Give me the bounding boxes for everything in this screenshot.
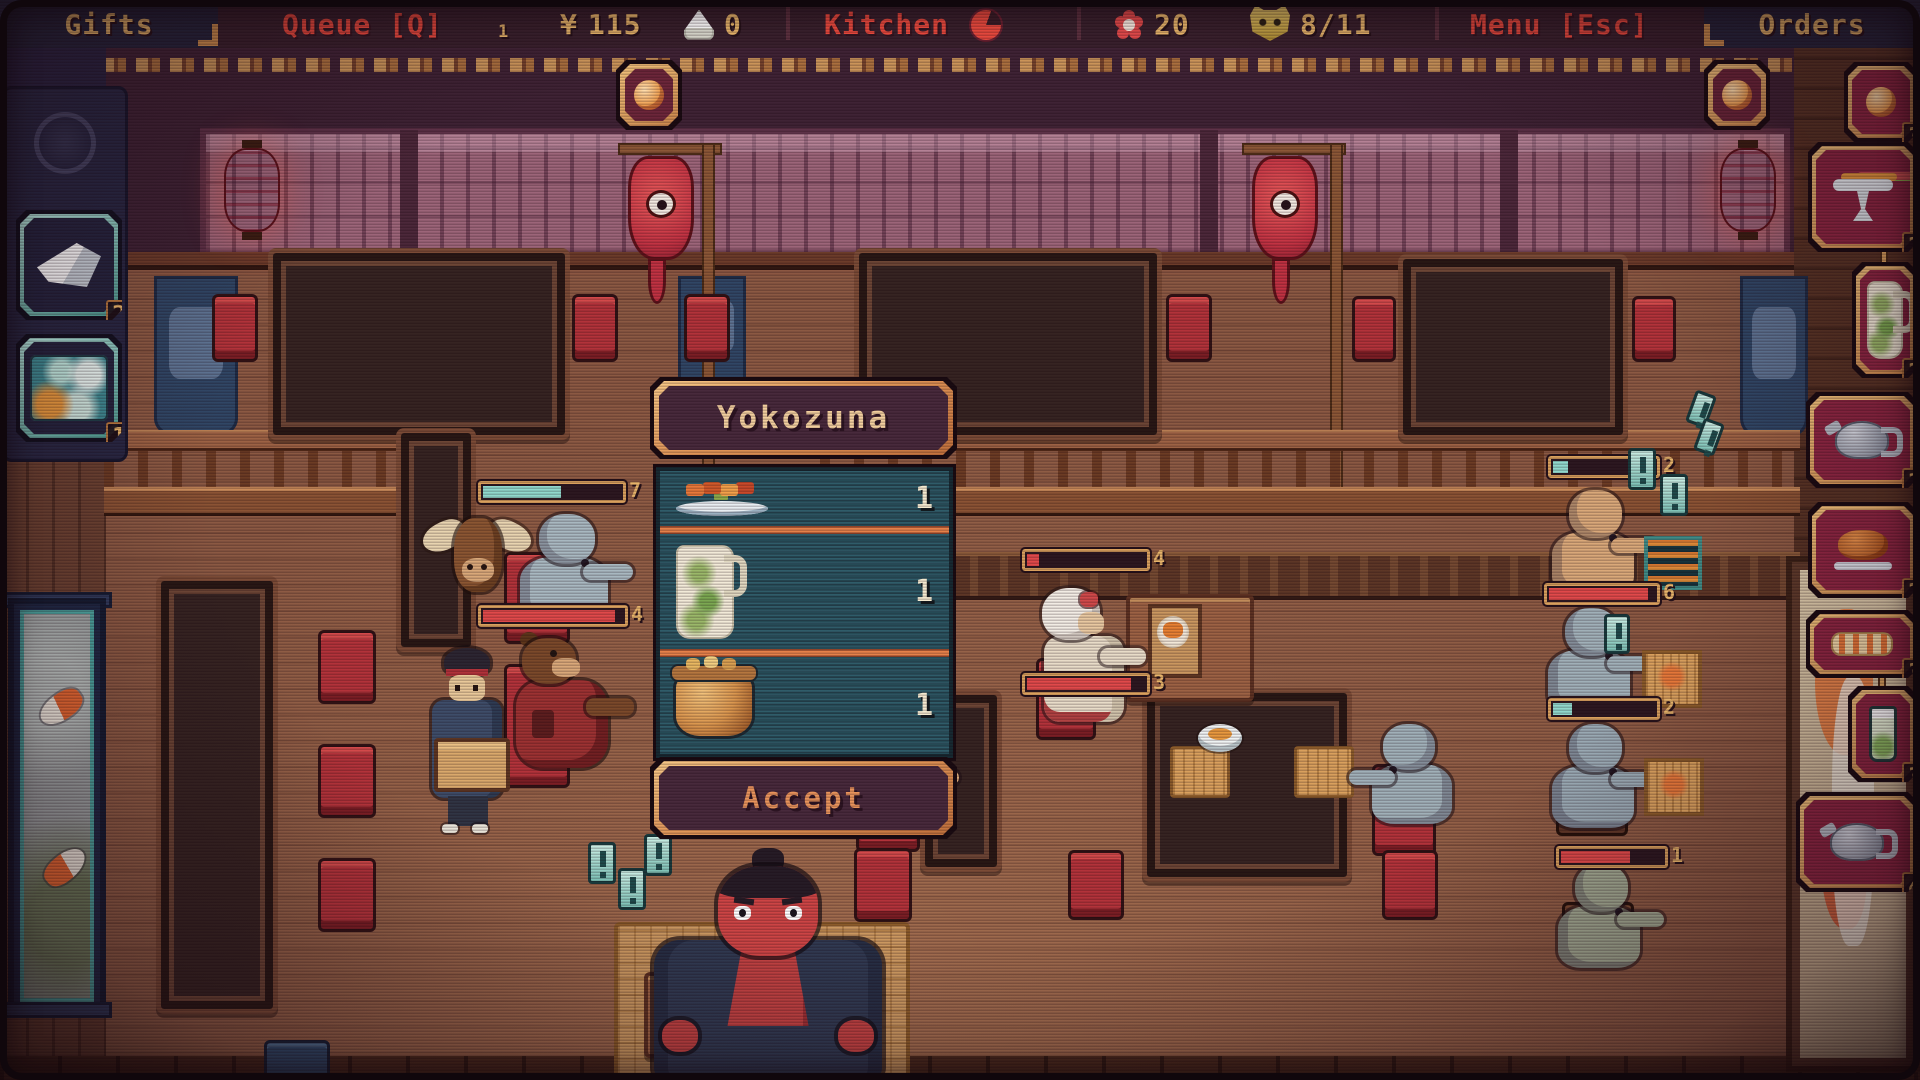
game-screen: 7 4 4 3 2 6 2 1 2 1 3 2 2 2 2	[0, 0, 1920, 1080]
waiter-character[interactable]	[424, 648, 510, 834]
chair	[572, 294, 618, 362]
red-lantern	[224, 148, 280, 232]
patience-bar: 2	[1548, 698, 1660, 720]
gift-slot-wave[interactable]: 1	[16, 334, 122, 442]
face	[1078, 612, 1104, 634]
divider	[1435, 6, 1439, 40]
gold-chain-decor	[0, 58, 1920, 72]
hair-bow	[1080, 592, 1098, 607]
robe-patch	[532, 710, 554, 738]
queued-customer-tan[interactable]	[1544, 490, 1642, 594]
shoe	[472, 824, 488, 833]
head	[718, 866, 818, 956]
eye	[785, 906, 802, 920]
carp-tail	[648, 258, 666, 304]
order-dialog-items: 1 1 1	[656, 467, 953, 758]
order-slot-sushi[interactable]: 3	[1806, 610, 1918, 678]
arm	[1617, 912, 1664, 928]
blue-tray	[264, 1040, 330, 1080]
corner-bracket	[1704, 24, 1724, 46]
iced-drink-icon	[1869, 706, 1897, 762]
customer-bear-yokai[interactable]	[510, 632, 626, 772]
gifts-button[interactable]: Gifts	[0, 0, 218, 48]
dish-sign	[1148, 604, 1202, 678]
queue-button[interactable]: Queue [Q]	[282, 8, 443, 41]
order-slot-pitcher[interactable]: 2	[1852, 262, 1918, 378]
fist	[662, 1020, 698, 1052]
exclamation-bubble-icon	[1604, 614, 1630, 654]
top-bar: Gifts Queue [Q] 1 ¥ 115 0 Kitchen 20 8/1…	[0, 0, 1920, 48]
koi-fish	[35, 683, 88, 731]
chair	[318, 858, 376, 932]
bamboo-pitcher-icon	[1867, 281, 1903, 359]
exclamation-bubble-icon	[1660, 474, 1688, 516]
queued-customer-gray[interactable]	[1544, 724, 1642, 828]
riceball-icon	[684, 10, 714, 40]
order-slot-fruit-stand[interactable]: 2	[1808, 142, 1918, 252]
carp-eye	[646, 190, 676, 218]
order-item-row: 1	[660, 657, 949, 754]
muzzle	[552, 658, 580, 677]
peach-icon	[1722, 80, 1752, 110]
item-qty: 1	[915, 574, 933, 609]
guest-counter: 8/11	[1250, 5, 1371, 41]
patience-value: 4	[631, 602, 643, 626]
arm	[586, 698, 634, 716]
shoe	[442, 824, 458, 833]
peach-icon	[1866, 87, 1896, 117]
queue-label: Queue [Q]	[282, 8, 443, 41]
head	[1570, 724, 1623, 772]
arm	[583, 564, 633, 580]
koi-painting	[20, 610, 94, 1002]
order-slot-teapot-2[interactable]: 4	[1796, 792, 1918, 892]
yen-icon: ¥	[560, 8, 578, 41]
patience-bar: 1	[1556, 846, 1668, 868]
railing	[104, 430, 436, 516]
patience-value: 1	[1671, 843, 1683, 867]
accept-button[interactable]: Accept	[650, 757, 957, 839]
gifts-label: Gifts	[64, 8, 153, 41]
patience-value: 7	[629, 478, 641, 502]
flower-count: 20	[1154, 8, 1190, 41]
order-slot-roast[interactable]: 2	[1808, 502, 1918, 598]
patience-bar: 6	[1544, 583, 1660, 605]
wall-post	[1200, 130, 1218, 256]
body	[516, 680, 608, 768]
patience-value: 6	[1663, 580, 1675, 604]
arm	[1100, 648, 1146, 665]
patience-bar: 3	[1022, 673, 1150, 695]
riceball-count: 0	[724, 8, 742, 41]
carried-tray-box	[434, 738, 510, 792]
exclamation-bubble-icon	[1628, 448, 1656, 490]
menu-board	[1644, 758, 1704, 816]
money-display: ¥ 115	[560, 8, 641, 41]
koi-scroll-painting	[8, 598, 106, 1014]
yokozuna-sumo-customer[interactable]	[654, 848, 882, 1080]
lattice-screen-wall	[200, 128, 1790, 258]
dining-table	[268, 248, 570, 440]
bamboo-pitcher-icon	[676, 545, 734, 639]
blue-wall-banner	[1740, 276, 1808, 438]
patience-bar: 4	[1022, 549, 1150, 571]
peach-icon	[634, 80, 664, 110]
peach-badge	[1704, 60, 1770, 130]
hair	[718, 866, 818, 898]
order-item-row: 1	[660, 534, 949, 649]
gift-slot-paper[interactable]: 2	[16, 210, 122, 320]
dialog-title: Yokozuna	[717, 400, 890, 436]
patience-bar: 7	[478, 481, 626, 503]
order-dialog-title: Yokozuna	[650, 377, 957, 459]
sashimi-platter-icon	[676, 482, 768, 516]
face	[449, 675, 485, 701]
kitchen-label: Kitchen	[824, 8, 949, 41]
food-bowl	[1198, 724, 1242, 752]
menu-button[interactable]: Menu [Esc]	[1470, 8, 1649, 41]
patience-bar: 4	[478, 605, 628, 627]
eye	[734, 906, 751, 920]
chair	[1068, 850, 1124, 920]
eye	[550, 650, 557, 657]
order-slot-peach[interactable]: 3	[1844, 62, 1918, 142]
queue-count-badge: 1	[498, 22, 508, 42]
fruit-stand-icon	[1831, 169, 1895, 225]
divider	[786, 6, 790, 40]
chair	[1166, 294, 1212, 362]
order-slot-teapot[interactable]: 2	[1806, 392, 1918, 488]
divider	[660, 526, 949, 534]
divider	[660, 649, 949, 657]
patience-value: 2	[1663, 695, 1675, 719]
order-item-row: 1	[660, 471, 949, 526]
folded-paper-icon	[37, 243, 101, 287]
scroll-cap	[2, 1002, 112, 1018]
menu-label: Menu [Esc]	[1470, 8, 1649, 41]
brow	[782, 897, 803, 906]
accept-label: Accept	[742, 781, 865, 815]
sushi-roll-icon	[1831, 632, 1893, 656]
patience-value: 4	[1153, 546, 1165, 570]
wall-post	[1500, 130, 1518, 256]
owl-face	[462, 558, 494, 582]
flower-counter: 20	[1114, 8, 1190, 41]
customer-white-haired-woman[interactable]	[1036, 588, 1140, 724]
chair	[1632, 296, 1676, 362]
head	[1576, 864, 1629, 912]
divider	[1077, 6, 1081, 40]
orders-label: Orders	[1758, 8, 1865, 41]
chair	[212, 294, 258, 362]
flower-icon	[1123, 19, 1135, 31]
corner-bracket	[198, 24, 218, 46]
fist	[838, 1020, 874, 1052]
carp-tail	[1272, 258, 1290, 304]
chair	[684, 294, 730, 362]
carp-eye	[1270, 190, 1300, 218]
money-value: 115	[588, 8, 642, 41]
customer-gray-yokai[interactable]	[1364, 724, 1460, 824]
dining-table	[1398, 254, 1628, 440]
riceball-counter: 0	[684, 8, 742, 41]
chair	[1352, 296, 1396, 362]
arm	[1349, 770, 1395, 785]
teapot-icon	[1830, 823, 1884, 861]
head	[1570, 490, 1623, 538]
tatami-cushion	[1294, 746, 1354, 798]
long-table	[156, 576, 278, 1014]
tatami-cushion	[1170, 746, 1230, 798]
head	[539, 514, 595, 564]
orders-button[interactable]: Orders	[1704, 0, 1920, 48]
roast-platter-icon	[1834, 530, 1892, 570]
exclamation-bubble-icon	[588, 842, 616, 884]
teapot-icon	[1835, 421, 1889, 459]
faded-emblem-icon	[34, 112, 96, 174]
wall-post	[400, 130, 418, 256]
koi-fish	[39, 842, 91, 891]
head	[1383, 724, 1435, 770]
chair	[318, 630, 376, 704]
queued-customer-green[interactable]	[1550, 864, 1648, 968]
chair	[318, 744, 376, 818]
order-slot-drink[interactable]: 3	[1848, 686, 1918, 782]
chair	[1382, 850, 1438, 920]
wave-painting-icon	[30, 355, 108, 421]
item-qty: 1	[915, 481, 933, 516]
patience-value: 3	[1153, 670, 1165, 694]
rice-pot-icon	[676, 674, 752, 736]
guest-count: 8/11	[1300, 8, 1371, 41]
peach-badge	[616, 60, 682, 130]
kitchen-timer-pie-icon	[971, 10, 1001, 40]
red-lantern	[1720, 148, 1776, 232]
legs	[448, 796, 488, 826]
kitchen-button[interactable]: Kitchen	[824, 8, 1001, 41]
mask-icon	[1250, 5, 1290, 41]
item-qty: 1	[915, 688, 933, 723]
exclamation-bubble-icon	[618, 868, 646, 910]
